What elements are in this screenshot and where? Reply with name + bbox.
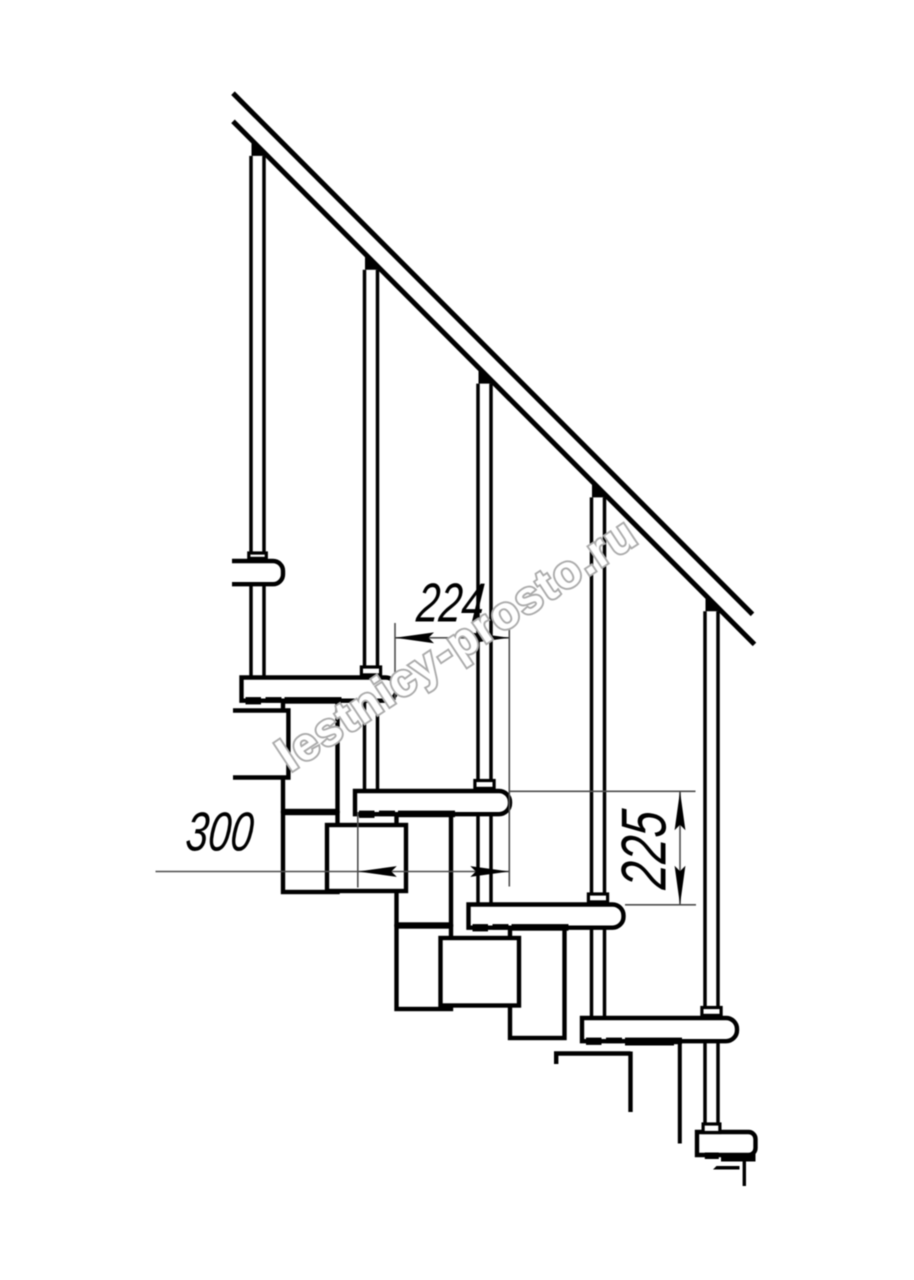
svg-text:300: 300 xyxy=(183,802,256,863)
svg-text:225: 225 xyxy=(609,806,680,892)
